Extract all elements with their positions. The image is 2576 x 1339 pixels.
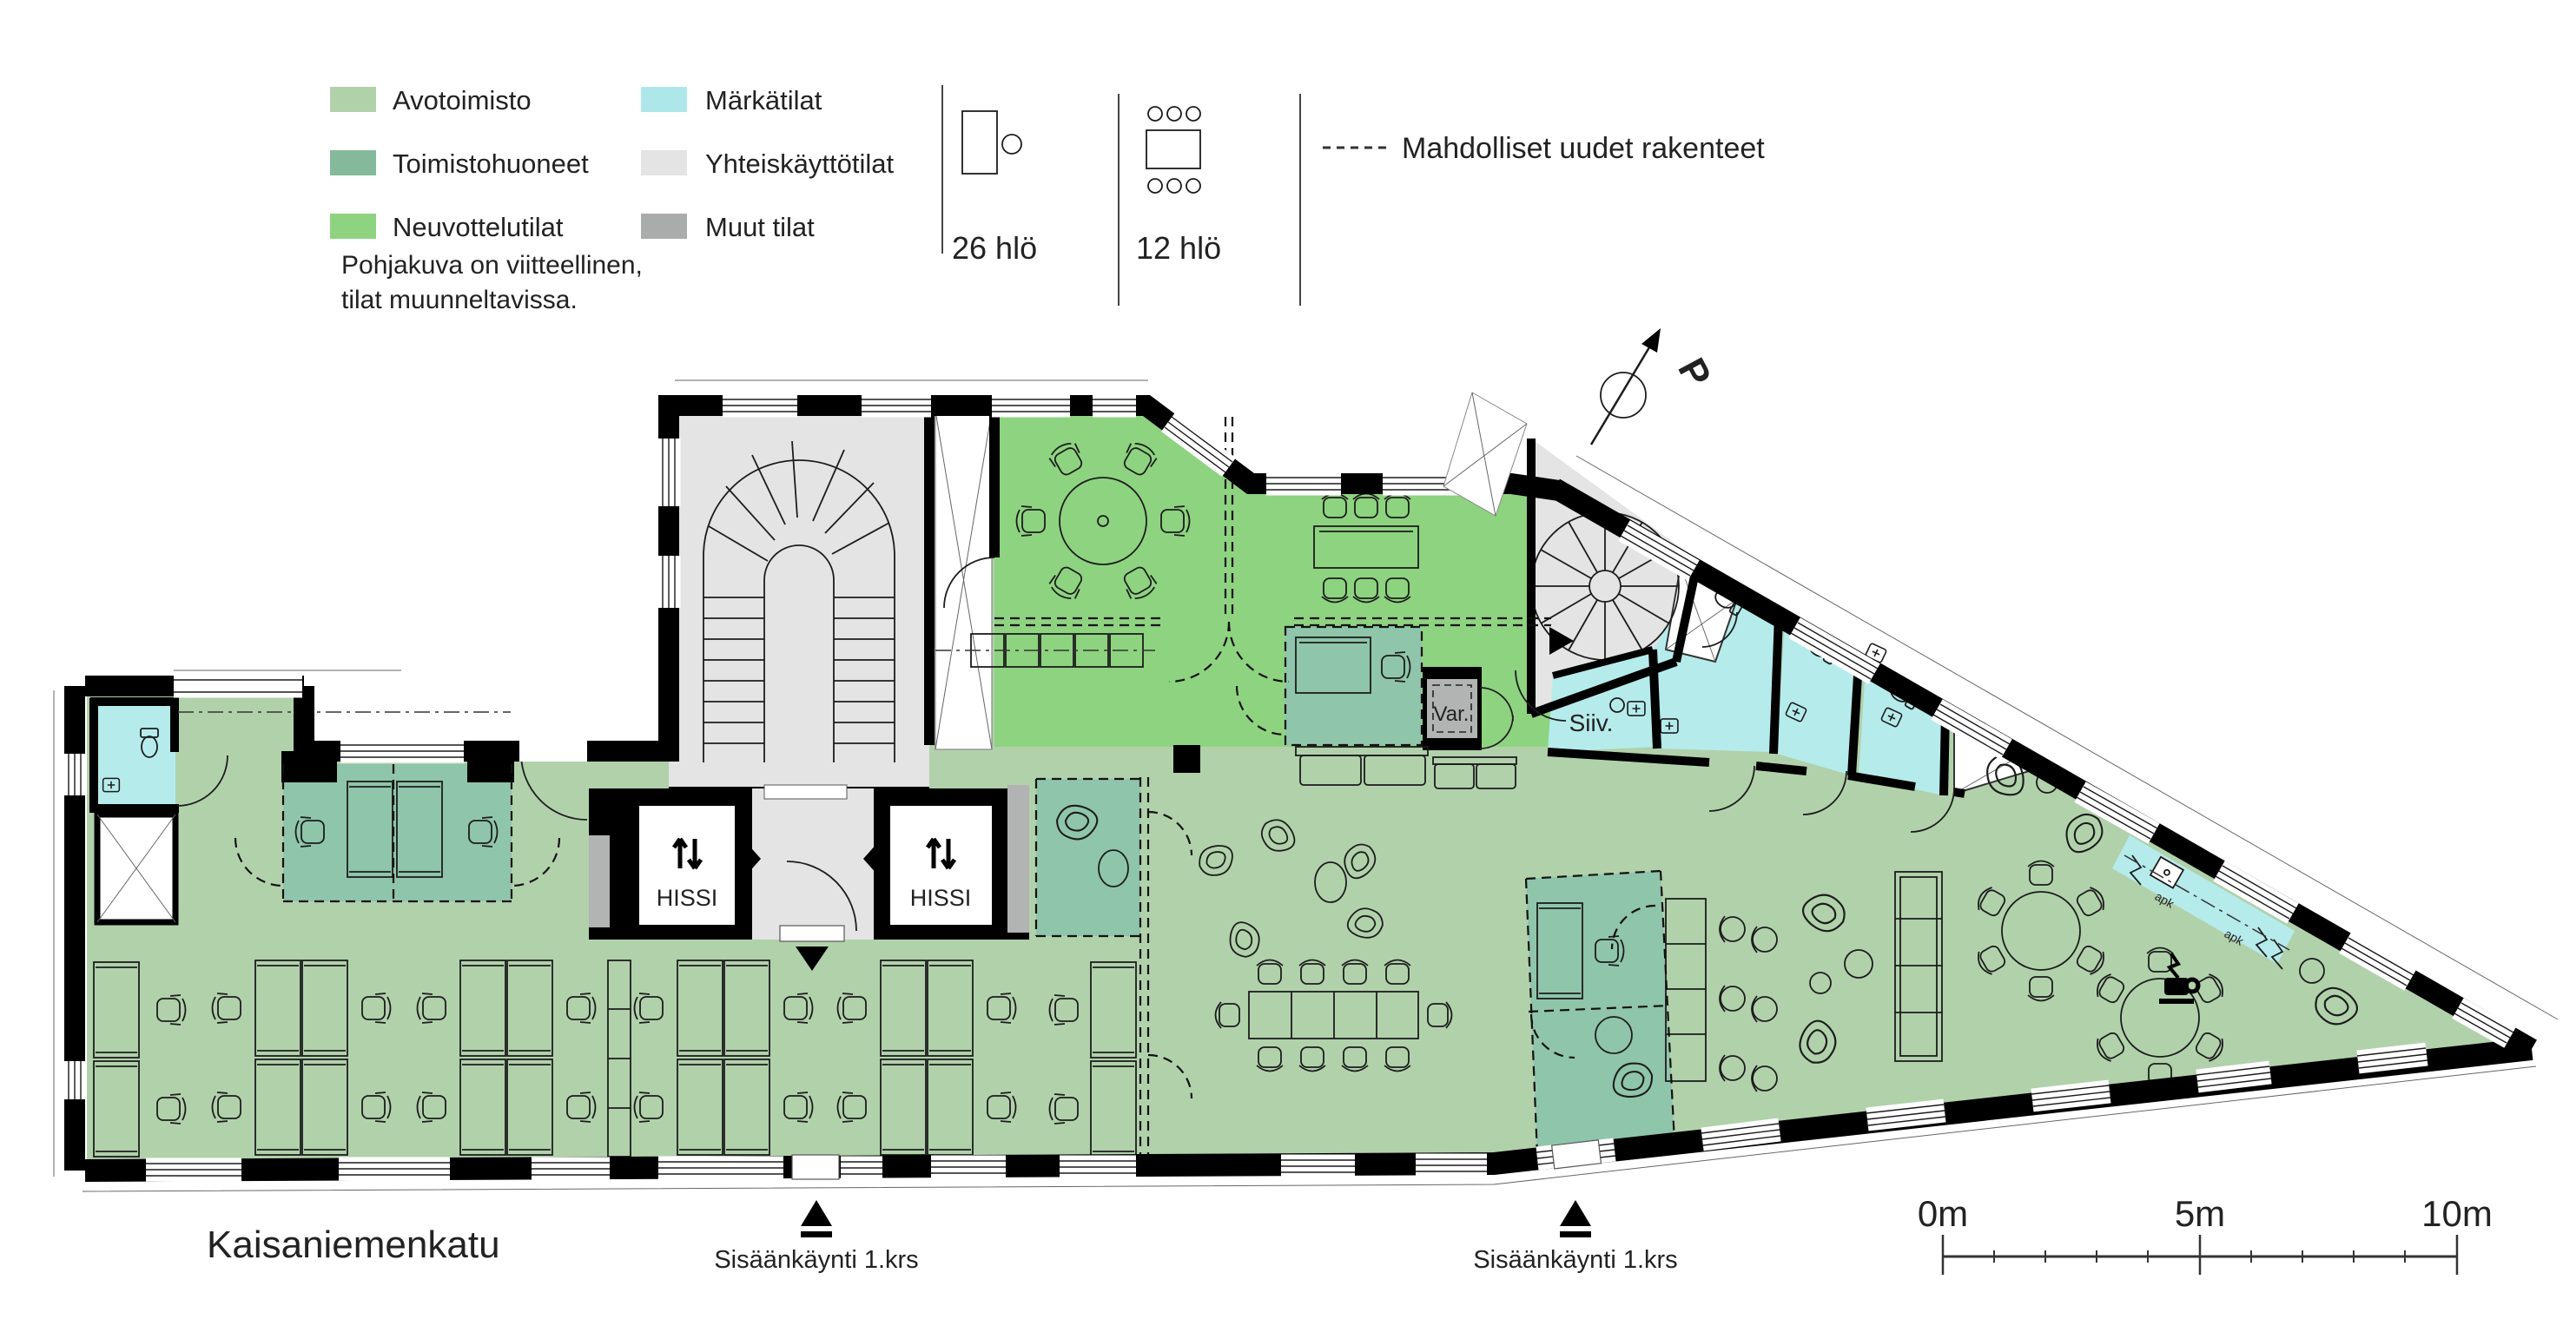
dashed-line-legend-label: Mahdolliset uudet rakenteet xyxy=(1402,132,1765,165)
note-line-1: Pohjakuva on viitteellinen, xyxy=(341,251,643,280)
office-room-southeast xyxy=(1526,871,1674,1155)
desk-capacity-label: 26 hlö xyxy=(952,230,1037,266)
legend-swatch-muut-tilat xyxy=(641,214,687,239)
entrance-label-2: Sisäänkäynti 1.krs xyxy=(1473,1246,1677,1274)
elevator-label: HISSI xyxy=(657,885,718,911)
legend-label: Avotoimisto xyxy=(393,85,532,115)
legend-label: Yhteiskäyttötilat xyxy=(705,148,894,179)
note-line-2: tilat muunneltavissa. xyxy=(341,286,578,314)
legend-label: Neuvottelutilat xyxy=(393,212,564,242)
scale-start-label: 0m xyxy=(1918,1193,1968,1234)
desk-capacity-icon xyxy=(962,111,1021,174)
entrance-marker-1 xyxy=(801,1200,832,1237)
office-room-center xyxy=(1285,627,1422,745)
street-label: Kaisaniemenkatu xyxy=(207,1224,500,1266)
floor-plan-page: Avotoimisto Toimistohuoneet Neuvotteluti… xyxy=(0,0,2576,1339)
cleaning-label: Siiv. xyxy=(1569,709,1614,736)
wc-room-west xyxy=(97,702,175,809)
legend-swatch-avotoimisto xyxy=(330,87,376,112)
entrance-label-1: Sisäänkäynti 1.krs xyxy=(714,1246,918,1274)
entrance-opening-1 xyxy=(792,1155,839,1179)
window-bay xyxy=(935,411,992,749)
legend-label: Toimistohuoneet xyxy=(393,148,589,179)
meeting-capacity-icon xyxy=(1146,107,1200,193)
plan-note: Pohjakuva on viitteellinen, tilat muunne… xyxy=(341,251,643,314)
scale-end-label: 10m xyxy=(2421,1193,2493,1234)
entrance-opening-2 xyxy=(1552,1140,1602,1169)
legend-swatch-yhteiskayttotilat xyxy=(641,150,687,175)
scale-middle-label: 5m xyxy=(2175,1193,2225,1234)
shaft-west xyxy=(97,815,175,922)
storage-label: Var. xyxy=(1434,702,1470,726)
north-arrow-icon: P xyxy=(1591,328,1719,445)
legend-swatch-toimistohuoneet xyxy=(330,150,376,175)
floor-plan-drawing: Avotoimisto Toimistohuoneet Neuvotteluti… xyxy=(0,0,2576,1339)
entrance-marker-2 xyxy=(1560,1200,1591,1237)
elevator-label: HISSI xyxy=(910,885,972,911)
legend-swatch-markatilat xyxy=(641,87,687,112)
scale-bar: 0m 5m 10m xyxy=(1918,1193,2493,1275)
north-label: P xyxy=(1669,352,1719,394)
legend-label: Märkätilat xyxy=(705,85,822,115)
door-opening xyxy=(519,741,587,762)
meeting-capacity-label: 12 hlö xyxy=(1136,230,1221,266)
legend-label: Muut tilat xyxy=(705,212,815,242)
legend-swatch-neuvottelutilat xyxy=(330,214,376,239)
